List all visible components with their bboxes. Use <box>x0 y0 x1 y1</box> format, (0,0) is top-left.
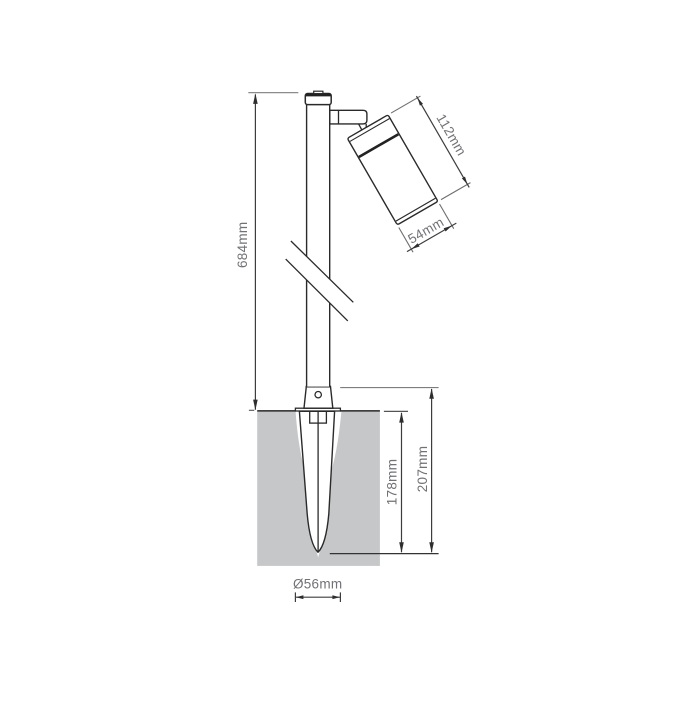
svg-text:178mm: 178mm <box>385 459 400 506</box>
svg-text:207mm: 207mm <box>415 446 430 493</box>
svg-text:Ø56mm: Ø56mm <box>293 577 343 592</box>
svg-text:684mm: 684mm <box>235 222 250 269</box>
